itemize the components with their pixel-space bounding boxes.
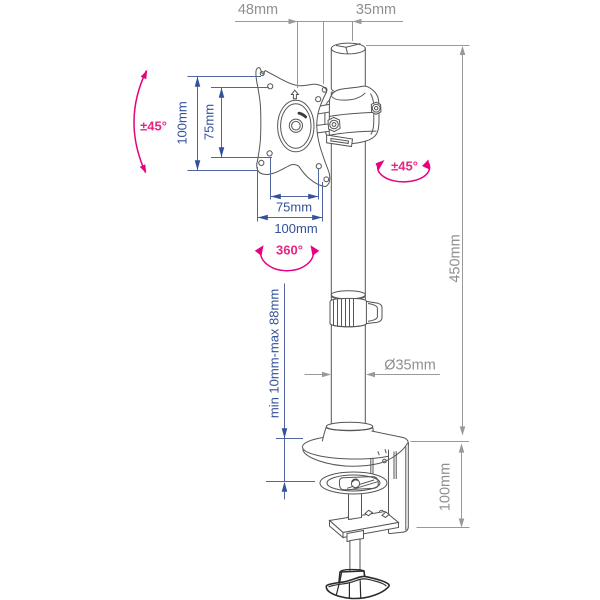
svg-text:min 10mm-max 88mm: min 10mm-max 88mm xyxy=(267,289,282,418)
svg-text:75mm: 75mm xyxy=(202,104,217,140)
svg-text:100mm: 100mm xyxy=(437,463,453,511)
svg-text:35mm: 35mm xyxy=(356,2,396,18)
svg-text:450mm: 450mm xyxy=(447,234,463,282)
svg-text:100mm: 100mm xyxy=(274,221,317,236)
svg-text:75mm: 75mm xyxy=(276,200,312,215)
svg-text:48mm: 48mm xyxy=(238,2,278,18)
svg-text:±45°: ±45° xyxy=(140,119,167,134)
svg-text:Ø35mm: Ø35mm xyxy=(384,358,436,374)
svg-text:360°: 360° xyxy=(276,243,303,258)
svg-text:100mm: 100mm xyxy=(175,101,190,144)
svg-text:±45°: ±45° xyxy=(391,159,418,174)
